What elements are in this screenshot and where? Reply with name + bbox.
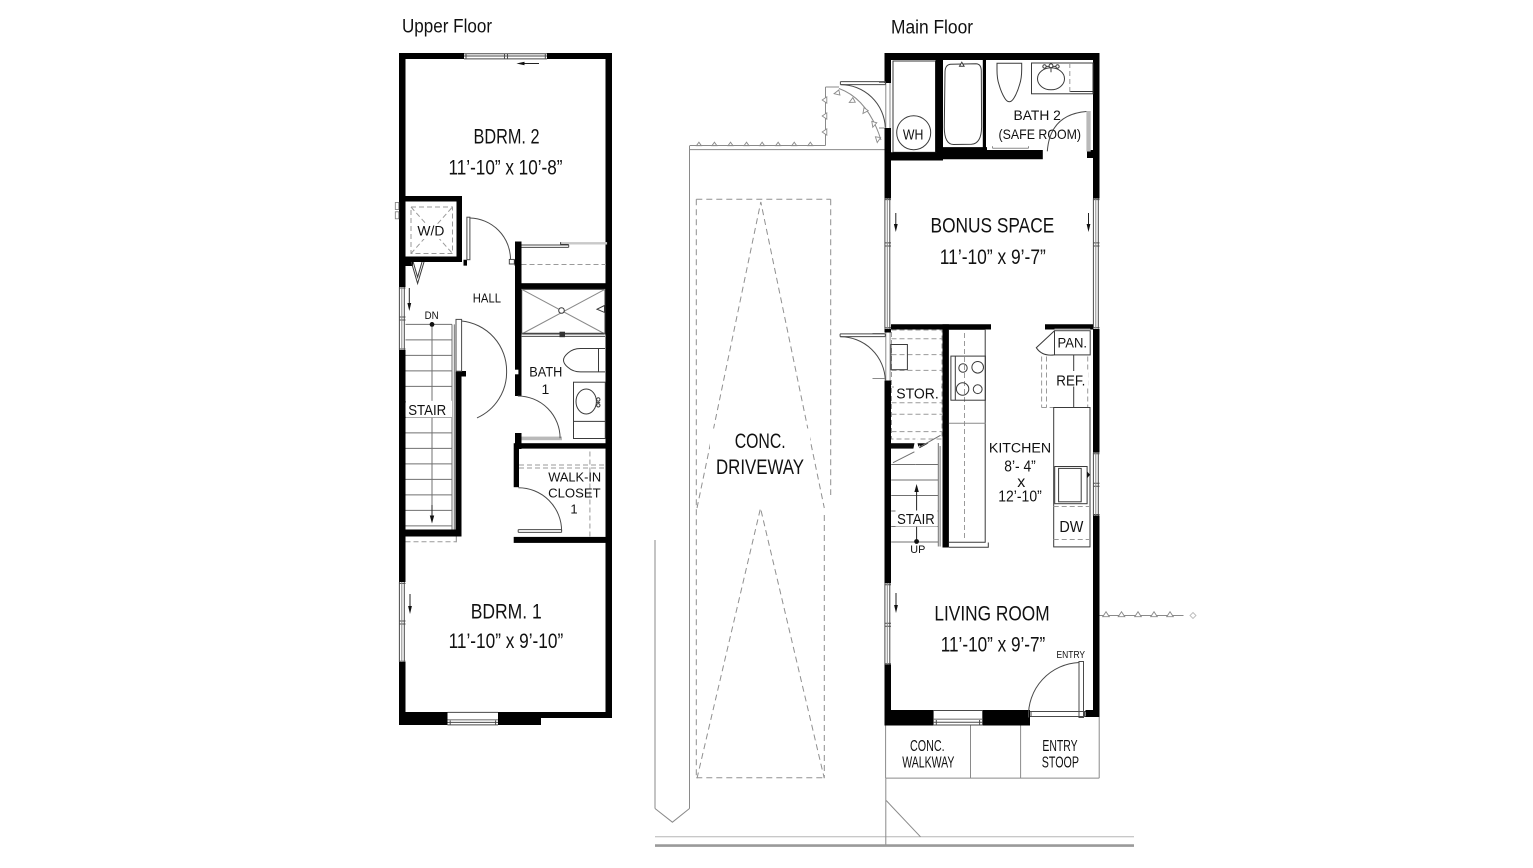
svg-text:HALL: HALL [473,292,501,306]
svg-text:PAN.: PAN. [1058,335,1088,350]
svg-text:ENTRY: ENTRY [1042,738,1077,755]
svg-text:STOR.: STOR. [896,386,939,403]
svg-text:STAIR: STAIR [408,402,446,419]
svg-text:8’- 4”: 8’- 4” [1004,458,1036,475]
svg-text:Upper Floor: Upper Floor [402,17,493,38]
svg-text:ENTRY: ENTRY [1057,649,1086,661]
svg-text:DN: DN [425,310,439,322]
svg-text:CLOSET: CLOSET [548,485,601,500]
svg-text:W/D: W/D [417,223,444,239]
svg-text:BONUS SPACE: BONUS SPACE [931,215,1055,238]
svg-text:WALKWAY: WALKWAY [902,754,954,771]
svg-text:12’-10”: 12’-10” [998,489,1042,506]
svg-text:KITCHEN: KITCHEN [989,441,1051,457]
svg-text:STOOP: STOOP [1042,754,1079,771]
svg-text:CONC.: CONC. [910,738,945,755]
svg-text:STAIR: STAIR [897,511,935,528]
svg-text:1: 1 [570,502,577,517]
svg-text:CONC.: CONC. [735,430,786,453]
svg-text:UP: UP [910,544,925,556]
svg-text:BATH 2: BATH 2 [1014,108,1061,123]
svg-text:REF.: REF. [1056,373,1085,390]
svg-text:LIVING ROOM: LIVING ROOM [934,603,1049,626]
svg-text:BATH: BATH [529,364,562,380]
svg-text:11’-10” x 9’-10”: 11’-10” x 9’-10” [449,630,564,653]
svg-text:11’-10” x 9’-7”: 11’-10” x 9’-7” [941,634,1046,657]
svg-text:DW: DW [1059,519,1084,536]
svg-text:WALK-IN: WALK-IN [548,470,601,485]
svg-text:DRIVEWAY: DRIVEWAY [716,456,804,479]
svg-text:1: 1 [542,381,550,397]
svg-text:BDRM. 1: BDRM. 1 [471,600,542,623]
svg-text:11’-10” x 9’-7”: 11’-10” x 9’-7” [940,246,1046,269]
svg-text:WH: WH [903,126,924,143]
svg-text:BDRM. 2: BDRM. 2 [474,126,540,149]
svg-text:11’-10” x 10’-8”: 11’-10” x 10’-8” [449,157,563,180]
svg-text:Main Floor: Main Floor [891,18,974,39]
svg-text:(SAFE ROOM): (SAFE ROOM) [999,126,1082,142]
